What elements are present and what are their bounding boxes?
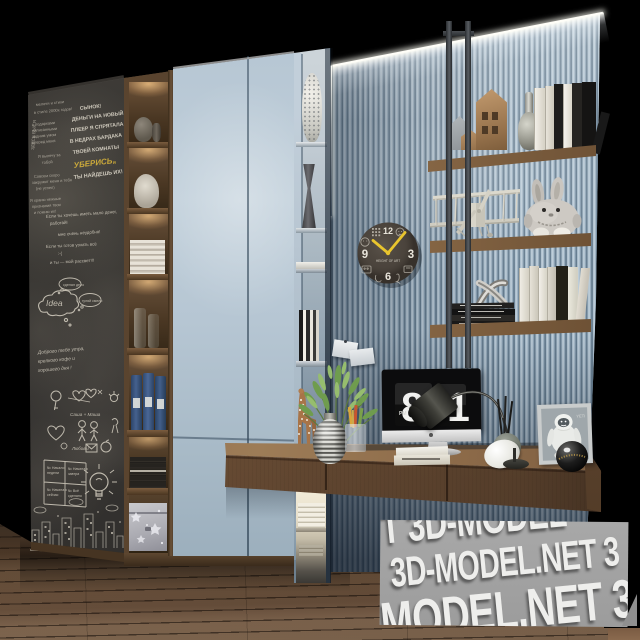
svg-text:№ Начало: № Начало xyxy=(47,466,64,470)
svg-text:ТВОЕЙ КОМНАТЫ: ТВОЕЙ КОМНАТЫ xyxy=(72,142,119,156)
svg-text:Любовь!: Любовь! xyxy=(71,446,90,451)
svg-text:Если ты хочешь иметь мало дене: Если ты хочешь иметь мало денег, xyxy=(46,209,117,219)
svg-text:хорошего дня !: хорошего дня ! xyxy=(37,365,73,374)
svg-text:(не успел): (не успел) xyxy=(36,185,56,191)
svg-text:сделано: сделано xyxy=(68,494,82,498)
svg-text:Саша + Маша: Саша + Маша xyxy=(70,412,101,417)
svg-text:ПЛЕЕР Я СПРЯТАЛА: ПЛЕЕР Я СПРЯТАЛА xyxy=(71,122,124,134)
svg-text:Idea: Idea xyxy=(46,298,63,308)
svg-text:УБЕРИСЬ: УБЕРИСЬ xyxy=(73,156,113,170)
svg-text:Если ты готов узнать всё: Если ты готов узнать всё xyxy=(46,241,98,249)
svg-text:в стиле 2000х годов!: в стиле 2000х годов! xyxy=(34,106,73,115)
svg-text:признания твои: признания твои xyxy=(32,202,61,209)
svg-text:сделал дело: сделал дело xyxy=(63,283,84,287)
svg-text:№ Всё: № Всё xyxy=(68,489,79,493)
svg-text:YETI: YETI xyxy=(576,413,585,418)
svg-text:12: 12 xyxy=(383,226,393,236)
svg-text:завтра: завтра xyxy=(68,472,79,476)
svg-text:В НЕДРАХ БАРДАКА: В НЕДРАХ БАРДАКА xyxy=(70,133,123,145)
svg-text:мелочи и стихи: мелочи и стихи xyxy=(36,99,65,107)
svg-text:тобой: тобой xyxy=(42,159,53,165)
svg-text:сейчас: сейчас xyxy=(47,493,59,497)
svg-text:HEIGHT OF ART: HEIGHT OF ART xyxy=(376,259,400,263)
svg-text:работай!: работай! xyxy=(50,220,68,226)
svg-text:крепкого кофе и: крепкого кофе и xyxy=(38,356,76,365)
svg-text:недели: недели xyxy=(47,471,59,475)
svg-text:мне очень неудобно!: мне очень неудобно! xyxy=(58,229,101,237)
svg-text:Доброго тебе утра,: Доброго тебе утра, xyxy=(37,346,85,356)
svg-text:ЗДЕСЬ БЫЛ Я: ЗДЕСЬ БЫЛ Я xyxy=(30,120,37,150)
svg-text::-(: :-( xyxy=(58,251,63,256)
svg-text:6: 6 xyxy=(385,271,391,283)
svg-text:№ Начинаю: № Начинаю xyxy=(47,488,67,492)
svg-text:и ты — мой рассвет!!!: и ты — мой рассвет!!! xyxy=(50,258,95,265)
svg-text:СЫНОК!: СЫНОК! xyxy=(80,103,102,112)
svg-text:гуляй смело: гуляй смело xyxy=(82,299,102,303)
svg-text:9: 9 xyxy=(362,249,368,261)
svg-text:Я вылечу за: Я вылечу за xyxy=(38,152,62,159)
svg-text:3: 3 xyxy=(408,249,414,261)
svg-text:и: и xyxy=(113,160,117,166)
